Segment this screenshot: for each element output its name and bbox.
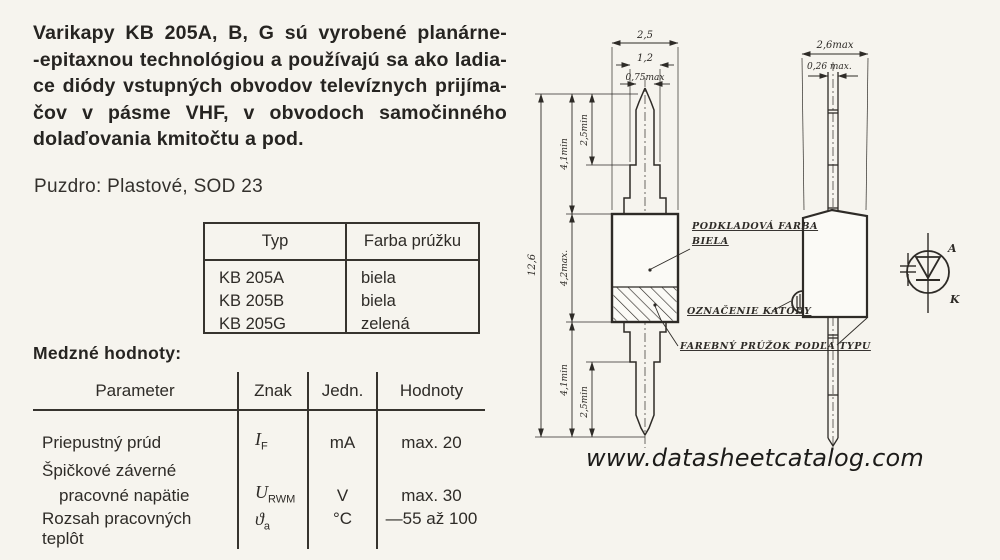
symbol-cell: URWM <box>238 481 308 506</box>
table-cell: KB 205B <box>219 290 345 313</box>
dim-height-total: 12,6 <box>527 253 538 276</box>
value-cell: max. 30 <box>377 481 485 506</box>
label-base-color-2: BIELA <box>691 236 729 247</box>
unit-cell: °C <box>308 506 377 549</box>
table-row: Rozsah pracovných teplôt ϑa °C —55 až 10… <box>33 506 485 549</box>
parameter-cell: Priepustný prúd <box>33 410 238 457</box>
cathode-stripe-band <box>614 287 677 321</box>
dim-width-body: 2,5 <box>636 30 653 41</box>
table-row: Priepustný prúd IF mA max. 20 <box>33 410 485 457</box>
column-header-typ: Typ <box>205 224 347 259</box>
stripe-color-column: biela biela zelená <box>347 261 478 332</box>
dim-width-tip: 0,75max <box>625 73 664 83</box>
symbol-cell: IF <box>238 410 308 457</box>
dim-side-width: 2,6max <box>816 40 854 51</box>
dim-tip-bottom: 2,5min <box>580 386 590 419</box>
value-cell <box>377 457 485 481</box>
dim-tip-top: 2,5min <box>580 114 590 147</box>
label-cathode-mark: OZNAČENIE KATÓDY <box>687 305 812 317</box>
dim-lead-top: 4,1min <box>560 138 570 171</box>
column-header-jedn: Jedn. <box>308 372 377 410</box>
column-header-znak: Znak <box>238 372 308 410</box>
dim-lead-bottom: 4,1min <box>560 364 570 397</box>
table-cell: zelená <box>361 313 478 336</box>
label-base-color: PODKLADOVÁ FARBA <box>691 220 818 232</box>
intro-line: ce diódy vstupných obvodov televíznych p… <box>33 73 507 100</box>
side-view: 2,6max 0,26 max. <box>792 40 868 452</box>
symbol-cell: ϑa <box>238 506 308 549</box>
limits-heading: Medzné hodnoty: <box>33 343 181 364</box>
symbol: U <box>255 482 268 502</box>
dim-width-lead: 1,2 <box>637 53 653 64</box>
type-column: KB 205A KB 205B KB 205G <box>205 261 347 332</box>
dim-body-height: 4,2max. <box>560 250 570 287</box>
table-cell: KB 205A <box>219 267 345 290</box>
unit-cell: mA <box>308 410 377 457</box>
table-row: pracovné napätie URWM V max. 30 <box>33 481 485 506</box>
intro-line: dolaďovania kmitočtu a pod. <box>33 126 507 153</box>
intro-line: čov v pásme VHF, v obvodoch samočinného <box>33 100 507 127</box>
intro-line: -epitaxnou technológiou a používajú sa a… <box>33 47 507 74</box>
table-cell: biela <box>361 290 478 313</box>
intro-line: Varikapy KB 205A, B, G sú vyrobené planá… <box>33 20 507 47</box>
unit-cell <box>308 457 377 481</box>
column-header-parameter: Parameter <box>33 372 238 410</box>
parameter-cell: Špičkové záverné <box>33 457 238 481</box>
symbol-cell <box>238 457 308 481</box>
color-code-table: Typ Farba prúžku KB 205A KB 205B KB 205G… <box>203 222 480 334</box>
varicap-symbol: A K <box>900 233 960 313</box>
label-color-stripe: FAREBNÝ PRÚŽOK PODĽA TYPU <box>679 340 871 352</box>
anode-label: A <box>947 242 957 255</box>
symbol-subscript: RWM <box>268 494 295 506</box>
datasheet-scan-page: { "intro": { "lines": [ "Varikapy KB 205… <box>0 0 1000 560</box>
symbol-subscript: a <box>264 521 270 533</box>
column-header-farba: Farba prúžku <box>347 224 478 259</box>
limits-table: Parameter Znak Jedn. Hodnoty Priepustný … <box>33 372 485 549</box>
color-code-table-body: KB 205A KB 205B KB 205G biela biela zele… <box>205 261 478 332</box>
value-cell: —55 až 100 <box>377 506 485 549</box>
limits-header-row: Parameter Znak Jedn. Hodnoty <box>33 372 485 410</box>
symbol-subscript: F <box>261 441 268 453</box>
intro-paragraph: Varikapy KB 205A, B, G sú vyrobené planá… <box>33 20 507 153</box>
symbol: ϑ <box>255 509 264 529</box>
unit-cell: V <box>308 481 377 506</box>
front-view: 2,5 1,2 0,75max 12,6 4,1min 2,5min 4,2ma… <box>527 30 678 448</box>
value-cell: max. 20 <box>377 410 485 457</box>
watermark-url: www.datasheetcatalog.com <box>586 444 924 472</box>
package-type-line: Puzdro: Plastové, SOD 23 <box>34 176 263 198</box>
table-cell: biela <box>361 267 478 290</box>
table-cell: KB 205G <box>219 313 345 336</box>
color-code-table-header: Typ Farba prúžku <box>205 224 478 261</box>
parameter-cell: Rozsah pracovných teplôt <box>33 506 238 549</box>
table-row: Špičkové záverné <box>33 457 485 481</box>
column-header-hodnoty: Hodnoty <box>377 372 485 410</box>
dim-lead-thickness: 0,26 max. <box>807 62 852 72</box>
parameter-cell: pracovné napätie <box>33 481 238 506</box>
package-drawing: 2,5 1,2 0,75max 12,6 4,1min 2,5min 4,2ma… <box>520 10 1000 460</box>
cathode-label: K <box>949 293 960 306</box>
